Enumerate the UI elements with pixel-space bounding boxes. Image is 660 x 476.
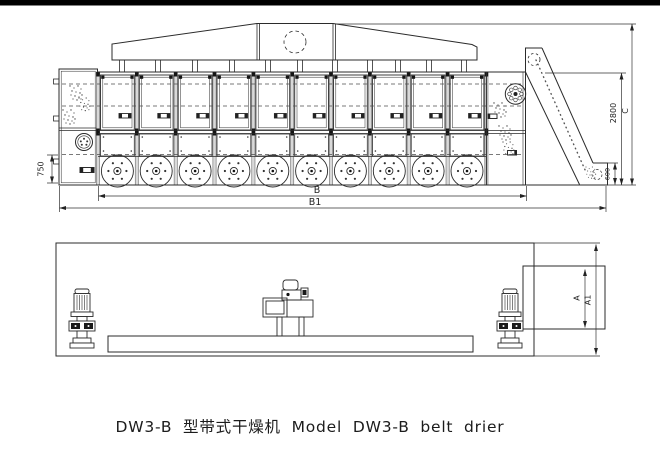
bay-module bbox=[96, 72, 134, 187]
caption: DW3-B 型带式干燥机 Model DW3-B belt drier bbox=[116, 418, 505, 436]
material-speckle bbox=[498, 125, 511, 140]
dim-label-A: A bbox=[573, 295, 582, 301]
bay-module bbox=[135, 72, 173, 187]
bay-module bbox=[174, 72, 212, 187]
bay-module bbox=[446, 72, 484, 187]
dim-label-2800: 2800 bbox=[609, 103, 618, 123]
dim-label-600: 600 bbox=[604, 168, 612, 180]
dim-label-750: 750 bbox=[37, 161, 46, 176]
scan-border bbox=[0, 0, 660, 6]
dim-label-C: C bbox=[621, 108, 630, 114]
plan-motor-right bbox=[497, 289, 523, 348]
plan-view: A A1 bbox=[56, 243, 605, 356]
material-speckle bbox=[502, 141, 514, 155]
bay-module bbox=[368, 72, 406, 187]
side-view: 750 B B1 600 2800 bbox=[37, 24, 637, 213]
bay-module bbox=[329, 72, 367, 187]
drying-chambers bbox=[62, 72, 526, 187]
dim-600: 600 bbox=[594, 163, 618, 185]
vent-circle bbox=[284, 31, 306, 53]
discharge-end-section bbox=[486, 72, 525, 185]
material-speckle bbox=[493, 102, 506, 117]
dim-B1: B1 bbox=[60, 186, 607, 212]
material-speckle bbox=[78, 97, 90, 111]
elevator-boot-pulley bbox=[592, 170, 602, 180]
dim-label-B1: B1 bbox=[309, 197, 322, 208]
plan-elevator-footprint bbox=[523, 266, 605, 329]
dim-label-B: B bbox=[314, 185, 321, 196]
bay-module bbox=[407, 72, 445, 187]
dim-2800: 2800 bbox=[545, 73, 626, 185]
dim-label-A1: A1 bbox=[584, 295, 593, 306]
bay-module bbox=[290, 72, 328, 187]
feed-end-section bbox=[54, 69, 98, 185]
material-speckle bbox=[62, 109, 75, 124]
plan-belt-frame bbox=[108, 336, 473, 352]
belt-drier-diagram: 750 B B1 600 2800 bbox=[0, 0, 660, 476]
bay-module bbox=[213, 72, 251, 187]
plan-view-dimensions: A A1 bbox=[573, 245, 597, 355]
plan-drive-unit bbox=[263, 280, 313, 336]
plan-motor-left bbox=[69, 289, 95, 348]
material-speckle bbox=[585, 166, 596, 178]
plan-outline bbox=[56, 243, 534, 356]
material-speckle bbox=[69, 85, 82, 100]
bay-module bbox=[252, 72, 290, 187]
hood-supports bbox=[120, 60, 467, 72]
dim-A1: A1 bbox=[584, 245, 597, 355]
exhaust-hood bbox=[112, 24, 477, 73]
